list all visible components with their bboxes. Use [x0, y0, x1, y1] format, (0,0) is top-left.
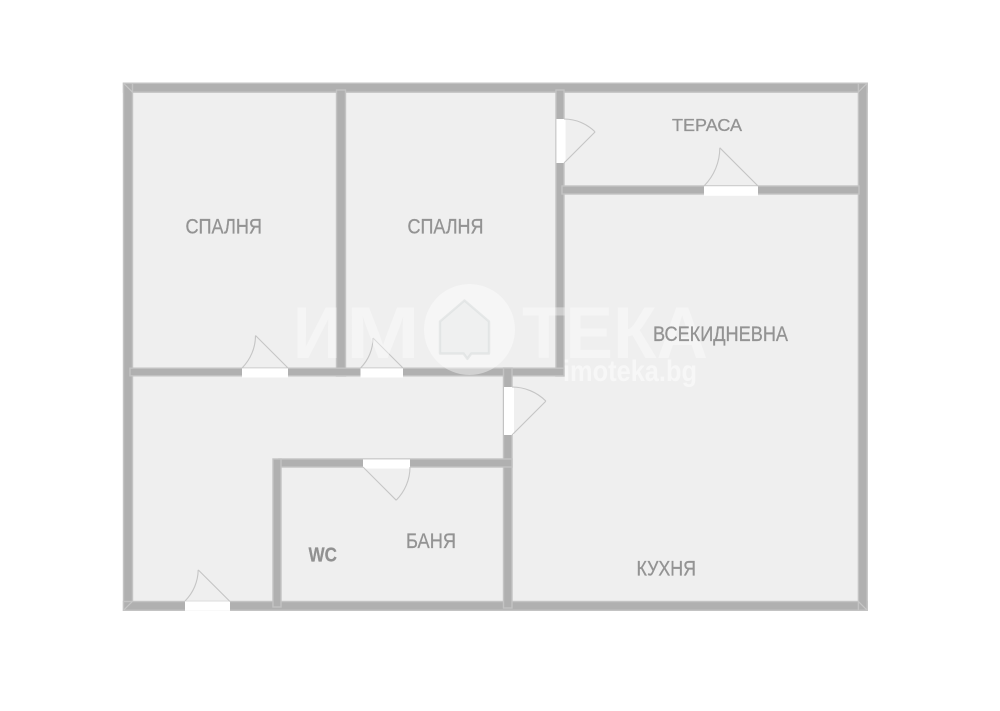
svg-text:БАНЯ: БАНЯ: [406, 530, 456, 553]
svg-text:И: И: [293, 293, 341, 374]
svg-text:М: М: [346, 293, 420, 374]
svg-text:СПАЛНЯ: СПАЛНЯ: [408, 216, 484, 239]
svg-text:КУХНЯ: КУХНЯ: [637, 558, 697, 581]
svg-text:ТЕРАСА: ТЕРАСА: [672, 115, 742, 135]
svg-text:ВСЕКИДНЕВНА: ВСЕКИДНЕВНА: [653, 323, 789, 346]
svg-text:imoteka.bg: imoteka.bg: [563, 355, 697, 388]
svg-text:СПАЛНЯ: СПАЛНЯ: [186, 216, 263, 239]
svg-text:WC: WC: [309, 545, 338, 567]
